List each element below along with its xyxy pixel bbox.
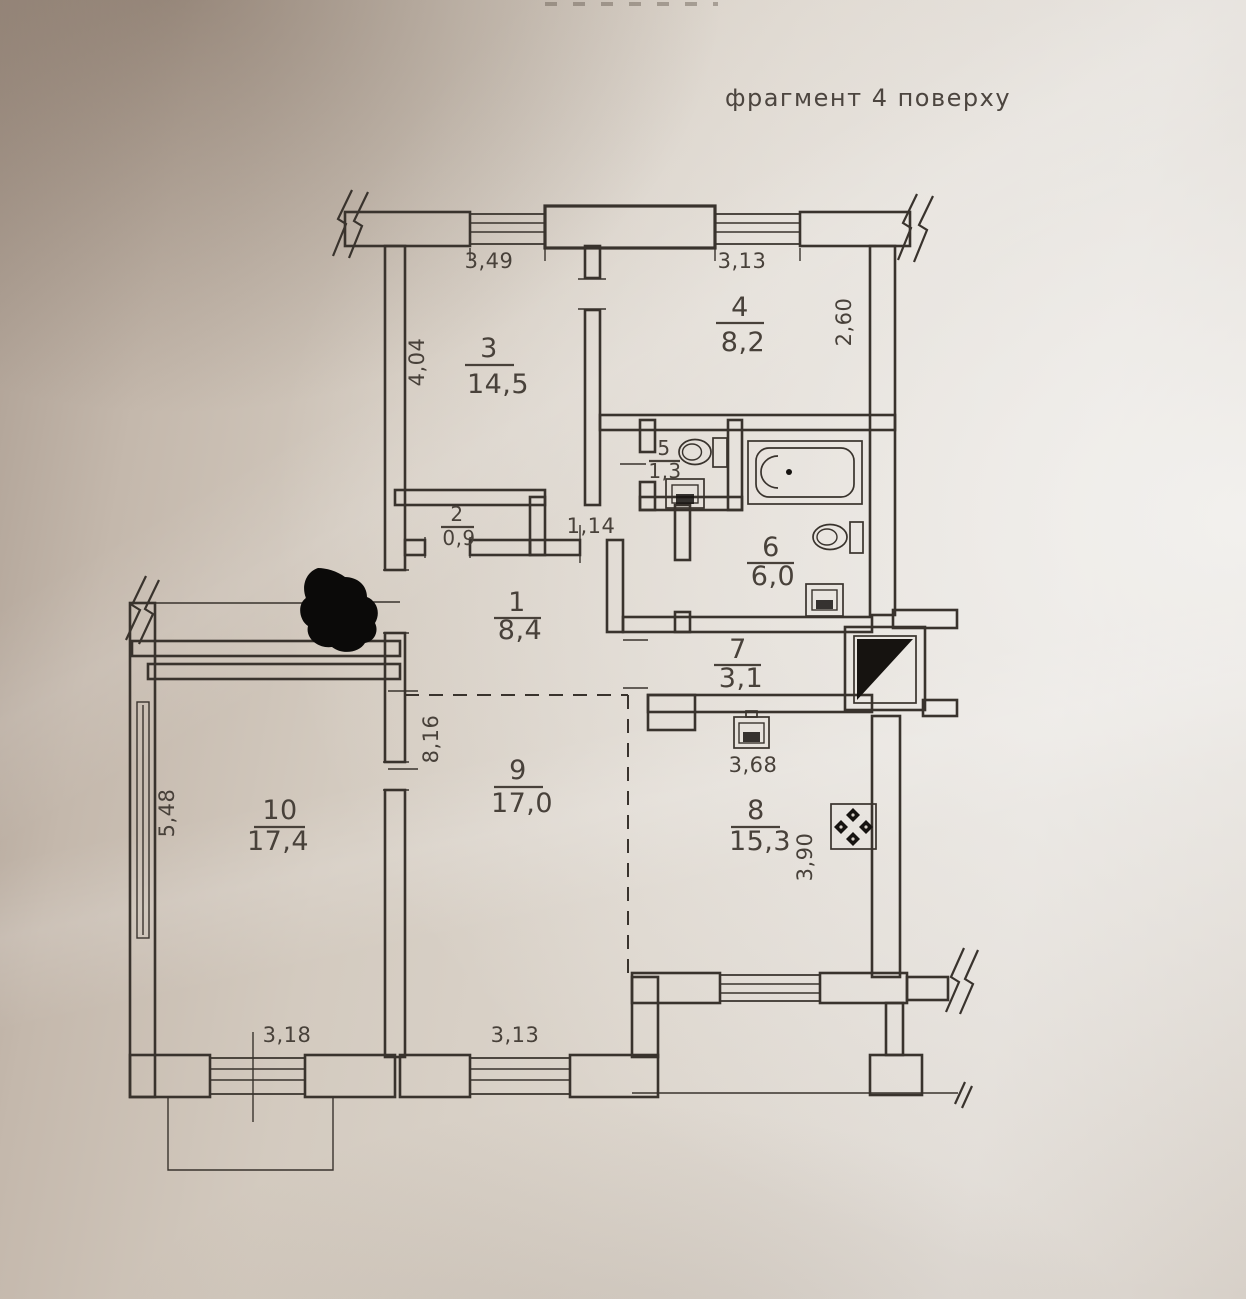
dim-kitchen-depth: 3,90 — [793, 833, 817, 882]
window-room3 — [470, 214, 545, 244]
dim-room3-width: 3,49 — [465, 249, 514, 273]
dim-room3-depth: 4,04 — [405, 338, 429, 387]
room-10-number: 10 — [262, 795, 297, 826]
window-kitchen — [720, 975, 820, 1001]
room-6-number: 6 — [762, 532, 780, 563]
room-1-area: 8,4 — [498, 615, 542, 646]
dim-kitchen-width: 3,68 — [729, 753, 778, 777]
room-8-number: 8 — [747, 795, 765, 826]
room-7-area: 3,1 — [719, 663, 763, 694]
room-3-area: 14,5 — [467, 369, 529, 400]
plan-drawing: 1 8,4 2 0,9 3 14,5 4 8,2 5 1,3 6 6,0 7 3… — [126, 190, 978, 1170]
window-room4 — [715, 214, 800, 244]
scanned-floorplan-page: фрагмент 4 поверху — [0, 0, 1246, 1299]
window-room10-left — [137, 702, 149, 938]
dim-room9-depth: 8,16 — [419, 715, 443, 764]
windows — [137, 214, 820, 1094]
redaction-blob — [300, 568, 378, 652]
break-kitchen-right — [946, 948, 978, 1014]
window-room9-bottom — [470, 1058, 570, 1094]
room-2-area: 0,9 — [442, 526, 475, 550]
sink-icon-kitchen — [734, 711, 769, 748]
toilet-icon-wc — [679, 438, 727, 467]
room-3-number: 3 — [480, 333, 498, 364]
floor-plan: фрагмент 4 поверху — [0, 0, 1246, 1299]
room-5-area: 1,3 — [648, 459, 681, 483]
dim-room4-width: 3,13 — [718, 249, 767, 273]
vent-shaft-icon — [854, 636, 916, 703]
sink-icon-wc — [666, 479, 704, 508]
room-10-area: 17,4 — [247, 826, 309, 857]
break-lower-line — [955, 1082, 972, 1108]
window-room10-bottom — [210, 1058, 305, 1094]
break-top-left — [333, 190, 368, 258]
toilet-icon-bathroom — [813, 522, 863, 553]
page-title: фрагмент 4 поверху — [725, 84, 1011, 112]
dim-room10-width: 3,18 — [263, 1023, 312, 1047]
dim-room4-depth: 2,60 — [832, 298, 856, 347]
room-2-number: 2 — [450, 502, 463, 526]
stove-icon — [831, 804, 876, 849]
dim-hall-passage: 1,14 — [567, 514, 616, 538]
room-5-number: 5 — [657, 436, 670, 460]
room-6-area: 6,0 — [751, 561, 795, 592]
fixtures — [666, 438, 916, 849]
room-4-number: 4 — [731, 292, 749, 323]
break-top-right — [898, 194, 933, 262]
room-1-number: 1 — [508, 587, 526, 618]
room-9-area: 17,0 — [491, 788, 553, 819]
room-8-area: 15,3 — [729, 826, 791, 857]
dim-room9-width: 3,13 — [491, 1023, 540, 1047]
room-9-number: 9 — [509, 755, 527, 786]
room-4-area: 8,2 — [721, 327, 765, 358]
bathtub-icon — [748, 441, 862, 504]
balcony-outline — [168, 1097, 333, 1170]
sink-icon-bathroom — [806, 584, 843, 616]
dim-room10-depth: 5,48 — [155, 789, 179, 838]
room-7-number: 7 — [729, 634, 747, 665]
